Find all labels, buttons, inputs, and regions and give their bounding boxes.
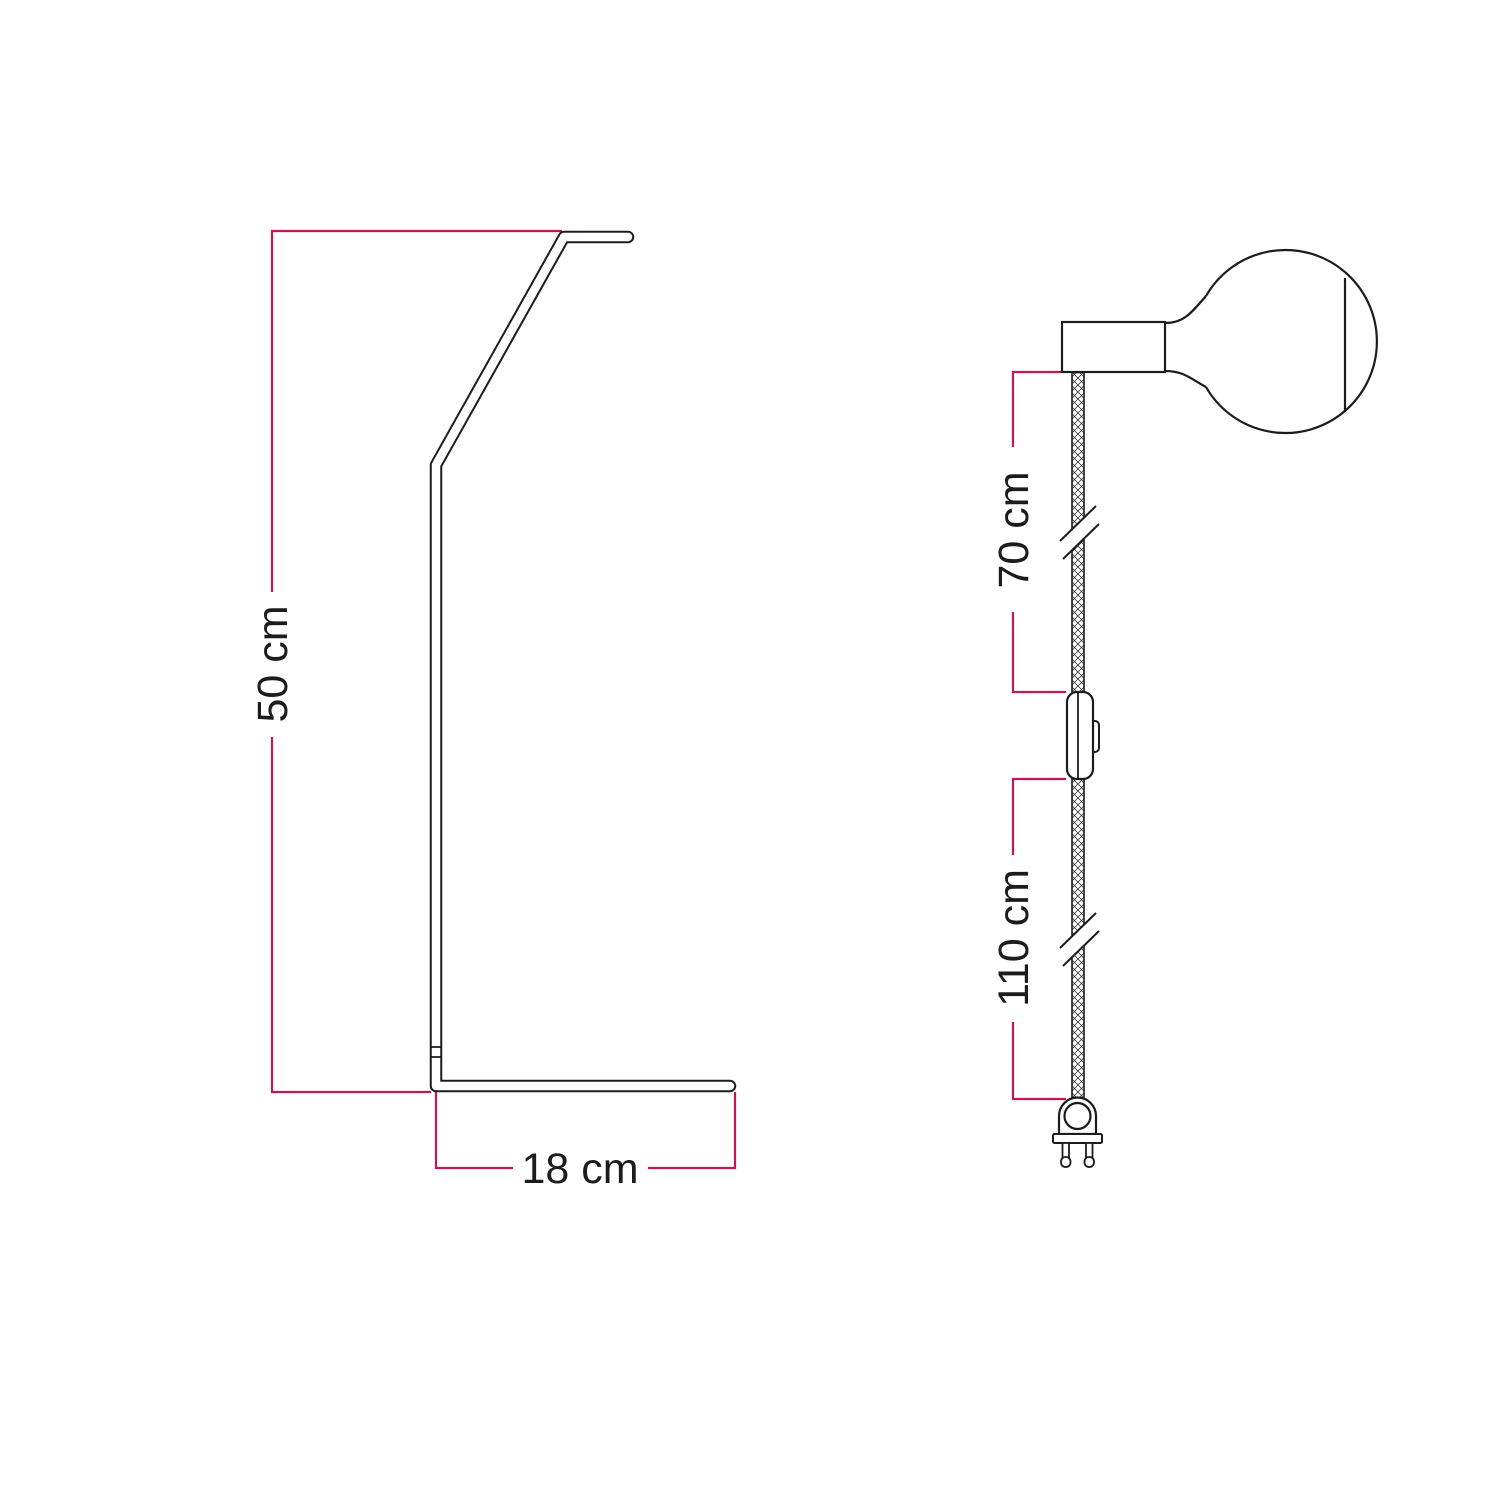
canvas-background [0, 0, 1500, 1500]
height-dimension-label: 50 cm [249, 605, 297, 722]
lamp-socket [1062, 322, 1165, 372]
lamp-dimension-diagram: 50 cm 18 cm [0, 0, 1500, 1500]
plug-cable-ring [1065, 1103, 1091, 1129]
plug-base-plate [1053, 1134, 1102, 1143]
switch-body [1067, 692, 1093, 779]
lower-cable-dimension-label: 110 cm [990, 869, 1038, 1007]
base-dimension-label: 18 cm [521, 1145, 638, 1193]
plug-prong-left [1061, 1143, 1071, 1167]
diagram-canvas: 50 cm 18 cm [0, 0, 1500, 1500]
upper-cable-dimension-label: 70 cm [990, 471, 1038, 588]
plug-prong-right [1085, 1143, 1095, 1167]
